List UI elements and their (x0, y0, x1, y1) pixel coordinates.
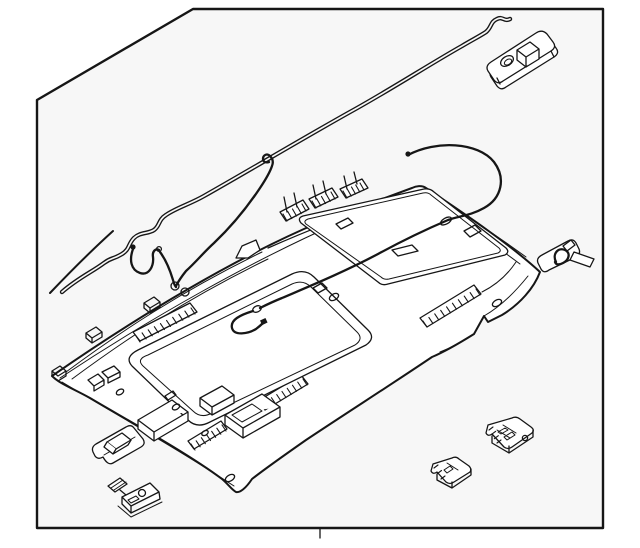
diagram-canvas (0, 0, 640, 548)
parts-diagram (0, 0, 640, 548)
